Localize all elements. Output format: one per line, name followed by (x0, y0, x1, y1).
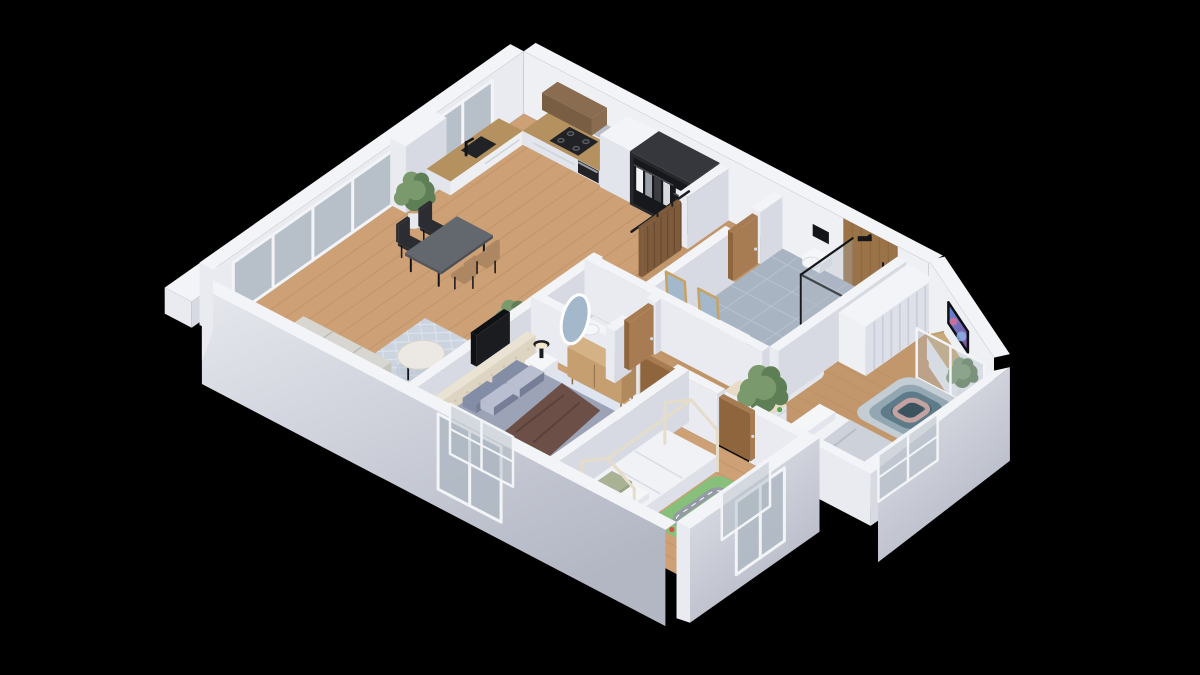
floor-plan-canvas (0, 0, 1200, 675)
isometric-floor-plan (0, 0, 1200, 675)
